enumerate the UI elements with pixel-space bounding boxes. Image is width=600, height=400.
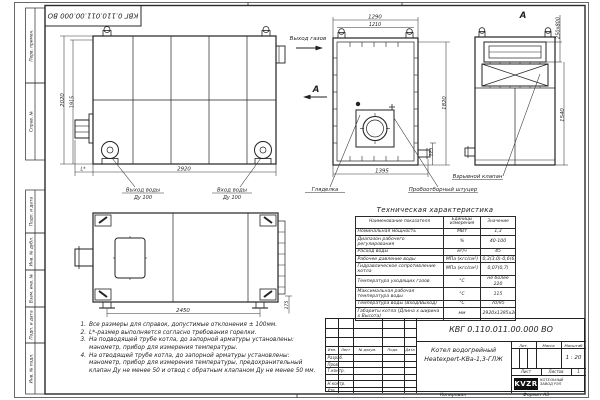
table-row: Температура уходящих газов°Сне более 220 [356,275,516,288]
water-inlet-nozzle [255,142,272,165]
tech-table-header: Наименование показателя Единицы измерени… [356,217,516,229]
drawing-sheet: Перв. примен. Справ. № Подп. и дата Инв.… [0,0,600,400]
cell: Расход воды [356,248,444,255]
product-name-line1: Котел водогрейный [416,347,511,354]
section-title-a: А [519,11,527,21]
label-explosion-valve: Взрывной клапан [453,174,503,180]
lit-label: Лит. [511,343,536,348]
note-text: На отводящей трубе котла, до запорной ар… [89,353,318,376]
col-data: Дата [404,348,416,352]
dim-2450: 2450 [176,308,190,314]
th-units: Единицы измерения [444,217,481,229]
note-item: 2.L*-размер выполняется согласно требова… [78,330,318,338]
water-outlet-nozzle [102,142,119,165]
burner-front [356,110,394,147]
tech-table: Техническая характеристика Наименование … [355,206,515,321]
footer-copied: Копировал [440,393,466,398]
mass-label: Масса [536,343,561,348]
row-razrab: Разраб. [328,355,344,360]
cell: 0,07(0,7) [481,263,516,276]
view-section [465,28,555,165]
col-izm: Изм. [326,348,338,352]
view-side-dim-texts: 2020 1915 2920 L* Выход воды Ду 100 Вход… [60,93,248,201]
section-arrow [303,95,327,100]
dim-1540: 1540 [560,108,566,122]
gas-outlet-flange [276,46,285,63]
dim-1210: 1210 [369,22,381,28]
cell: МВт [444,228,481,235]
cell: Диапазон рабочего регулирования [356,236,444,249]
dim-2920: 2920 [177,166,191,172]
right-flange-plan [278,221,285,294]
tech-table-title: Техническая характеристика [355,206,515,214]
side-stamp-column [26,8,46,394]
side-label-vzam: Взам. инв. № [29,273,35,303]
section-stub [465,148,475,156]
side-stamp-labels: Перв. примен. Справ. № Подп. и дата Инв.… [29,29,35,383]
label-water-out-dn: Ду 100 [133,195,152,201]
side-label-inv-podl: Инв. № подл. [29,354,35,384]
note-num: 3. [78,337,89,352]
cell: Гидравлическое сопротивление котла [356,263,444,276]
scale-value: 1 : 20 [561,355,586,361]
note-item: 4.На отводящей трубе котла, до запорной … [78,353,318,376]
title-block: Изм. Лист № докум. Подп. Дата Разраб. Пр… [325,318,585,392]
footer-format: Формат А3 [523,393,549,398]
cell: 115 [481,288,516,301]
sheets-value: 1 [571,369,586,374]
row-nkontr: Н.контр. [328,381,346,386]
sheet-label: Лист [511,369,541,374]
col-podp: Подп. [382,348,404,352]
drain-stub [418,150,430,157]
cell: °С [444,288,481,301]
dim-1820: 1820 [442,96,448,110]
top-stamp: КВГ 0.110.011.00.000 ВО [45,6,141,27]
col-docnum: № докум. [353,348,382,352]
cell: 70/95 [481,300,516,307]
cell: 0,3(3,0)-0,6(6,0) [481,256,516,263]
company-logo: KVZR [514,378,538,390]
dim-125: 125 [429,148,435,157]
product-name-line2: Heatexpert-КВа-1,3-ГЛЖ [416,356,511,363]
table-row: Максимальная рабочая температура воды°С1… [356,288,516,301]
label-water-in: Вход воды [217,188,248,194]
cell: м³/ч [444,248,481,255]
dim-1290: 1290 [368,14,382,20]
view-section-dims [452,15,568,180]
dim-250x800: 250х800 [556,17,562,39]
cell: °С [444,275,481,288]
th-value: Значение [481,217,516,229]
row-prov: Пров. [328,362,340,367]
col-list: Лист [338,348,353,352]
view-section-texts: А 250х800 1540 Взрывной клапан [453,11,566,180]
table-row: Диапазон рабочего регулирования%40-100 [356,236,516,249]
hatch-opening [113,236,147,280]
cell: МПа (кгс/см²) [444,263,481,276]
gas-flow-arrow [296,46,323,51]
side-label-inv-dubl: Инв. № дубл. [29,237,35,266]
burner-stub-plan [75,246,93,269]
cell: Температура уходящих газов [356,275,444,288]
view-front-dims [305,17,478,193]
cell: Рабочее давление воды [356,256,444,263]
label-water-in-dn: Ду 100 [222,195,241,201]
note-num: 2. [78,330,89,338]
side-label-perv: Перв. примен. [29,29,35,61]
cell: % [444,236,481,249]
dim-L: L* [80,166,86,172]
dim-2020: 2020 [60,93,66,107]
note-item: 3.На подводящей трубе котла, до запорной… [78,337,318,352]
cell: Температура воды (Вход/Выход) [356,300,444,307]
cell: не более 220 [481,275,516,288]
dim-1915: 1915 [69,96,75,108]
row-tkontr: Т.контр. [328,368,345,373]
cell: °С [444,300,481,307]
company-name: КОТЕЛЬНЫЙ ЗАВОД РЭП [540,378,563,387]
view-plan [75,213,285,308]
burner-flange-side [75,114,93,143]
cell: Максимальная рабочая температура воды [356,288,444,301]
note-num: 1. [78,322,89,330]
section-mark-a: А [312,85,320,95]
th-name: Наименование показателя [356,217,444,229]
explosion-valve-box [482,62,548,88]
dim-1395: 1395 [375,168,389,174]
cell: 40-100 [481,236,516,249]
scale-label: Масштаб [561,343,586,348]
label-sampling: Пробоотборный штуцер [409,187,478,193]
table-row: Номинальная мощностьМВт1,3 [356,228,516,235]
view-front [296,29,430,165]
peephole-fitting [356,102,360,106]
table-row: Расход водым³/ч45 [356,248,516,255]
cell: Номинальная мощность [356,228,444,235]
doc-code: КВГ 0.110.011.00.000 ВО [416,325,586,334]
table-row: Температура воды (Вход/Выход)°С70/95 [356,300,516,307]
note-text: L*-размер выполняется согласно требовани… [89,330,318,338]
table-row: Гидравлическое сопротивление котлаМПа (к… [356,263,516,276]
side-label-podp2: Подп. и дата [29,310,35,340]
cell: 45 [481,248,516,255]
note-text: На подводящей трубе котла, до запорной а… [89,337,318,352]
view-side [75,27,285,165]
note-item: 1.Все размеры для справок, допустимые от… [78,322,318,330]
table-row: Рабочее давление водыМПа (кгс/см²)0,3(3,… [356,256,516,263]
label-water-out: Выход воды [126,188,161,194]
note-num: 4. [78,353,89,376]
side-label-sprav: Справ. № [29,111,35,132]
cell: МПа (кгс/см²) [444,256,481,263]
top-stamp-code: КВГ 0.110.011.00.000 ВО [47,11,138,19]
side-label-podp1: Подп. и дата [29,197,35,227]
label-peephole: Гляделка [312,187,339,193]
corner-lugs [95,215,276,300]
view-front-dim-texts: 1290 1210 1820 125 1395 Выход газов А Гл… [290,14,478,193]
note-text: Все размеры для справок, допустимые откл… [89,322,318,330]
sheets-label: Листов [541,369,571,374]
sampling-fitting [389,104,395,110]
row-utv: Утв. [328,388,336,393]
cell: 1,3 [481,228,516,235]
company-name-line2: ЗАВОД РЭП [540,382,563,386]
dim-175: 175 [284,301,290,310]
label-gas-out: Выход газов [290,36,327,42]
notes-list: 1.Все размеры для справок, допустимые от… [78,322,318,375]
